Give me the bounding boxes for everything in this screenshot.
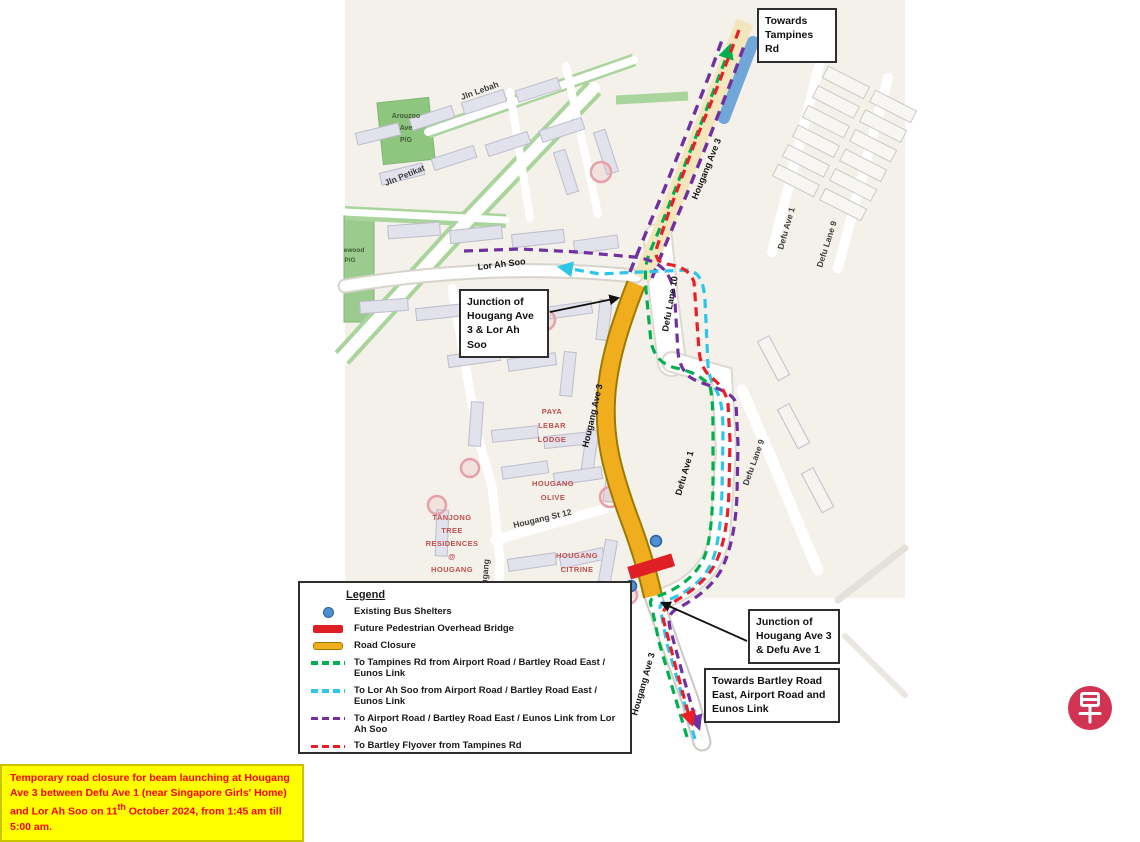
- road-closure-swatch-icon: [310, 640, 346, 652]
- label-tanjong-tree: TANJONG: [433, 513, 472, 522]
- purple-dash-icon: [310, 713, 346, 725]
- svg-text:TREE: TREE: [441, 526, 463, 535]
- svg-text:OLIVE: OLIVE: [541, 493, 566, 502]
- road-closure-map: Lor Ah Soo Hougang Ave 3 Hougang Ave 3 H…: [0, 0, 1140, 759]
- svg-text:@: @: [448, 552, 456, 561]
- legend-item-route-purple: To Airport Road / Bartley Road East / Eu…: [310, 713, 624, 736]
- callout-junction-defu: Junction of Hougang Ave 3 & Defu Ave 1: [748, 609, 840, 664]
- svg-text:Ave: Ave: [400, 125, 413, 132]
- red-dash-icon: [310, 740, 346, 752]
- callout-junction-lor-ah-soo: Junction of Hougang Ave 3 & Lor Ah Soo: [459, 289, 549, 358]
- svg-text:LODGE: LODGE: [538, 435, 567, 444]
- label-hougang-citrine: HOUGANG: [556, 551, 598, 560]
- label-ewood: ewood: [344, 247, 365, 254]
- bus-shelter-dot: [651, 536, 662, 547]
- label-hougang-olive: HOUGANG: [532, 479, 574, 488]
- label-paya-lebar-lodge: PAYA: [542, 407, 563, 416]
- zaobao-logo: [1066, 684, 1114, 732]
- label-hougang-ave3-lower: Hougang Ave 3: [629, 651, 656, 716]
- callout-towards-bartley: Towards Bartley Road East, Airport Road …: [704, 668, 840, 723]
- legend-item-bus-shelters: Existing Bus Shelters: [310, 606, 624, 618]
- svg-text:P/G: P/G: [344, 257, 355, 264]
- legend-item-road-closure: Road Closure: [310, 640, 624, 652]
- svg-text:LEBAR: LEBAR: [538, 421, 566, 430]
- cyan-dash-icon: [310, 685, 346, 697]
- legend-item-route-green: To Tampines Rd from Airport Road / Bartl…: [310, 657, 624, 680]
- svg-text:CITRINE: CITRINE: [561, 565, 594, 574]
- svg-text:P/G: P/G: [400, 137, 413, 144]
- legend: Legend Existing Bus Shelters Future Pede…: [298, 581, 632, 754]
- legend-item-route-red: To Bartley Flyover from Tampines Rd: [310, 740, 624, 752]
- legend-title: Legend: [346, 589, 630, 601]
- legend-item-bridge: Future Pedestrian Overhead Bridge: [310, 623, 624, 635]
- label-arouzoo: Arouzoo: [392, 113, 420, 120]
- legend-item-route-cyan: To Lor Ah Soo from Airport Road / Bartle…: [310, 685, 624, 708]
- closure-notice: Temporary road closure for beam launchin…: [0, 764, 304, 842]
- green-dash-icon: [310, 657, 346, 669]
- callout-towards-tampines: Towards Tampines Rd: [757, 8, 837, 63]
- bus-shelter-icon: [310, 606, 346, 618]
- svg-text:RESIDENCES: RESIDENCES: [426, 539, 479, 548]
- bridge-swatch-icon: [310, 623, 346, 635]
- svg-text:HOUGANG: HOUGANG: [431, 565, 473, 574]
